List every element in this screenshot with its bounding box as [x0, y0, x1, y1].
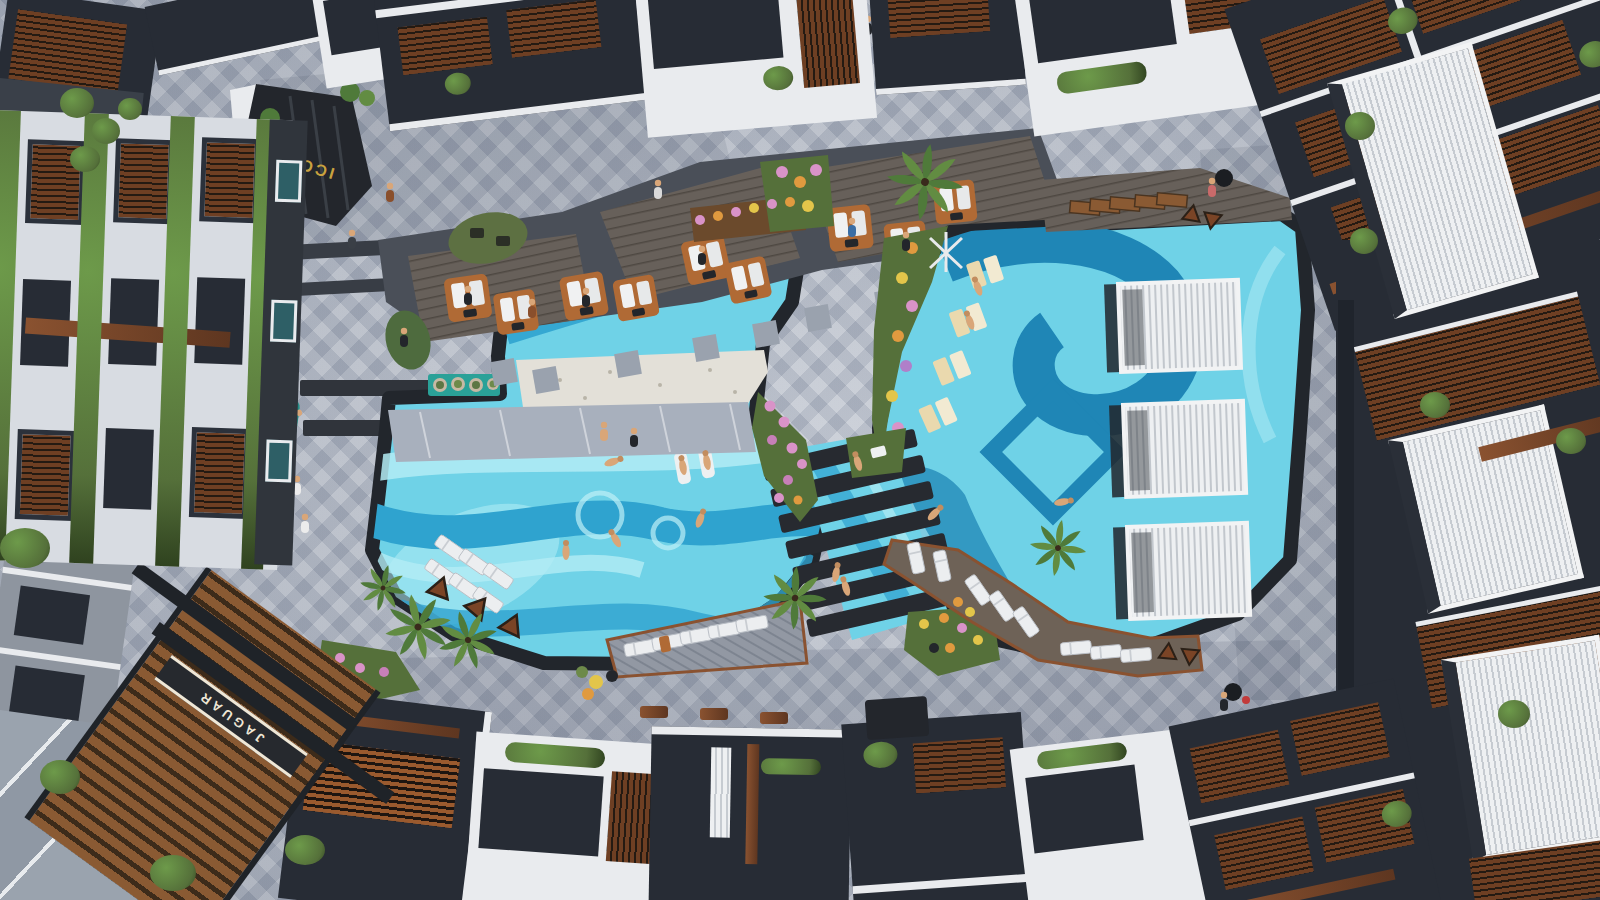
- bench-b: [700, 708, 728, 720]
- building-bottom-b: [464, 732, 666, 900]
- aerial-courtyard-render: ICONIC: [0, 0, 1600, 900]
- building-top-c: [633, 0, 877, 138]
- building-top-d: [868, 0, 1026, 95]
- building-bottom-c: [648, 726, 851, 900]
- pool-cabanas: [1104, 280, 1250, 620]
- left-facade: [0, 110, 293, 570]
- bench-a: [640, 706, 668, 718]
- building-bottom-d: [841, 712, 1035, 900]
- dark-sofa: [865, 696, 930, 740]
- bench-c: [760, 712, 788, 724]
